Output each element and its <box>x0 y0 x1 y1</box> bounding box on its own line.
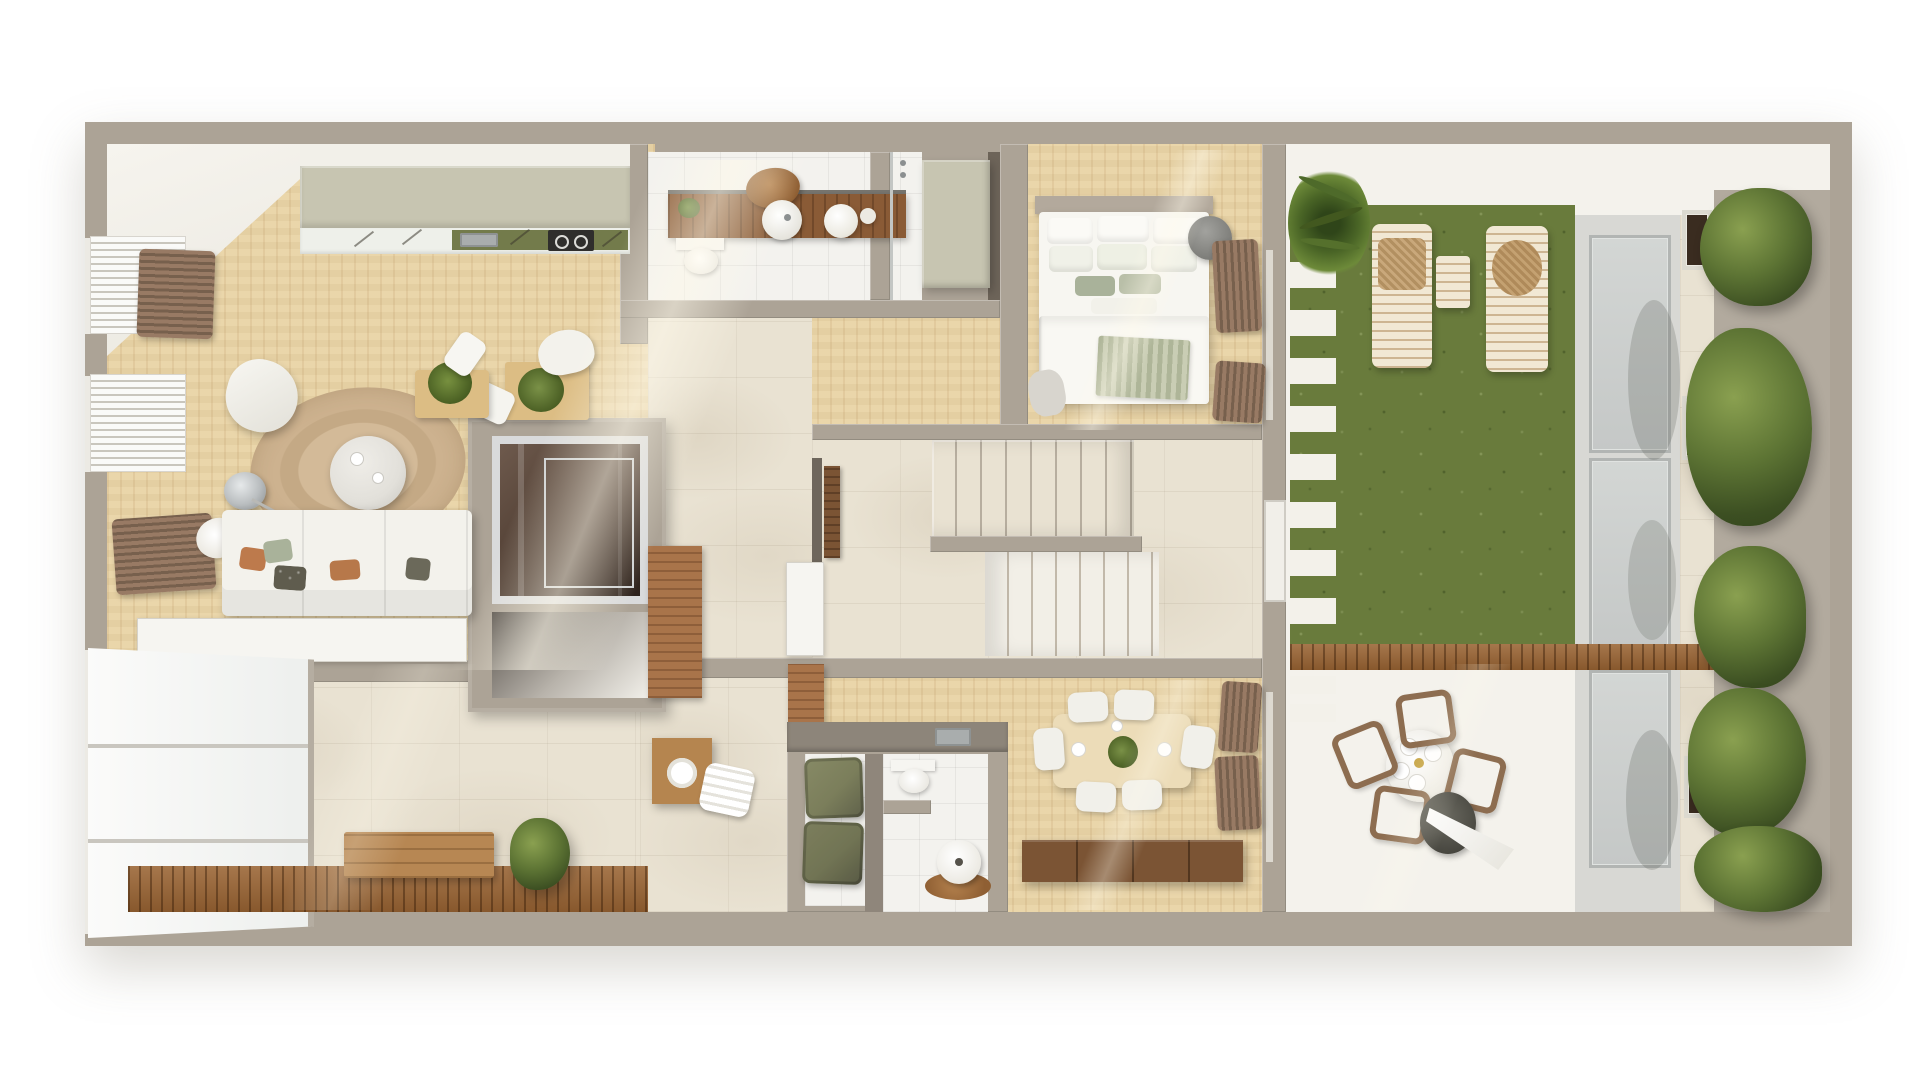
elevator-cab-frame <box>492 436 648 604</box>
pillow <box>1097 244 1147 270</box>
plant-shadow <box>1628 300 1680 460</box>
coffee-table <box>330 436 406 510</box>
dining-chair <box>1075 781 1117 813</box>
hedge-bush <box>1694 546 1806 688</box>
cooktop <box>548 230 594 251</box>
olive-pouf <box>802 821 864 885</box>
wall-stair-top <box>812 424 1262 440</box>
lounger-cushion <box>1492 240 1542 296</box>
burner <box>574 235 588 249</box>
centerpiece-plant <box>1108 736 1138 768</box>
curtain-stack <box>1212 239 1263 333</box>
floor-plan-render <box>0 0 1920 1080</box>
window-mullion <box>88 744 314 748</box>
curtain-stack <box>136 249 215 340</box>
wood-wall-cabinet <box>788 664 824 728</box>
window-mullion <box>88 839 314 843</box>
throw-pillow-dark <box>273 565 307 591</box>
stand-knob <box>955 858 963 866</box>
shower-fitting <box>900 172 906 178</box>
kitchen-backsplash <box>300 144 630 168</box>
kitchen-cabinet-run <box>300 166 630 228</box>
plate <box>1157 742 1172 757</box>
upper-stair-flight <box>932 440 1134 536</box>
cabin-outline <box>544 458 634 588</box>
wc-mid-wall <box>865 754 883 912</box>
pillow <box>1097 216 1149 242</box>
stepping-planks <box>1290 262 1336 652</box>
elevator-glass <box>500 444 640 596</box>
wall-stair-bottom <box>648 658 1262 678</box>
vanity-plant <box>678 198 700 218</box>
plate <box>1111 720 1123 732</box>
towel-roll <box>698 761 757 818</box>
kitchen-sink <box>460 233 498 247</box>
pillow <box>1049 246 1093 272</box>
slat-side-table <box>1436 256 1470 308</box>
fern-plant <box>1288 166 1370 280</box>
stepping-plank <box>1290 704 1336 722</box>
faucet <box>784 214 791 221</box>
pillow <box>1047 218 1093 244</box>
wardrobe-block <box>922 160 990 288</box>
pendant-lamp-small <box>860 208 876 224</box>
wc-toilet-bowl <box>899 769 929 793</box>
wall-stair-divider <box>930 536 1142 552</box>
pendant-lamp <box>824 204 858 238</box>
wood-bench <box>344 832 494 878</box>
wc-sink <box>935 728 971 746</box>
dining-chair <box>1067 691 1109 723</box>
pillow <box>1151 246 1197 272</box>
table-center <box>1414 758 1424 768</box>
olive-pouf <box>804 757 864 819</box>
plate <box>1071 742 1086 757</box>
plant-shadow <box>1626 730 1678 870</box>
hedge-bush <box>1686 328 1812 526</box>
shower-fitting <box>900 160 906 166</box>
dining-chair <box>1121 779 1162 810</box>
throw-pillow-rust <box>329 559 360 581</box>
plate <box>1424 744 1442 762</box>
walnut-sideboard <box>1022 840 1243 882</box>
stepping-plank <box>1290 676 1336 694</box>
lower-stair-flight <box>985 552 1159 656</box>
shower-glass <box>890 152 893 300</box>
throw-pillow-sage <box>263 538 294 564</box>
curtain-stack <box>1212 360 1266 423</box>
hedge-bush <box>1700 188 1812 306</box>
pillow-sage <box>1119 274 1161 294</box>
wc-counter <box>787 722 1008 752</box>
wc-inner-wall <box>883 800 931 814</box>
sage-throw <box>1095 336 1190 401</box>
plant-shadow <box>1628 520 1676 640</box>
wc-block <box>787 722 1008 912</box>
glass-dining-door <box>1266 692 1273 862</box>
sofa <box>222 510 472 616</box>
white-cabinet <box>786 562 824 656</box>
hedge-bush <box>1694 826 1822 912</box>
lounger-cushion <box>1378 238 1426 290</box>
sun-lounger <box>1372 224 1432 368</box>
bed <box>1035 196 1215 410</box>
door-frame <box>812 458 822 562</box>
outdoor-chair <box>1395 688 1458 749</box>
fireplace-niche <box>492 612 648 698</box>
dining-chair <box>1033 727 1066 771</box>
throw-pillow-dark <box>405 557 431 581</box>
round-basin <box>762 200 802 240</box>
wall-bathroom-bottom <box>620 300 1000 318</box>
burner <box>555 235 569 249</box>
side-wood-panel <box>648 546 702 698</box>
dining-chair <box>1113 689 1154 720</box>
dining-chair <box>1179 724 1217 770</box>
deck-divider <box>1290 644 1714 670</box>
sun-lounger <box>1486 226 1548 372</box>
toilet-bowl <box>684 248 718 274</box>
lumbar-pillow <box>1091 298 1157 314</box>
terrace-door <box>1264 500 1286 602</box>
towel-ring <box>667 758 697 788</box>
pillow-sage <box>1075 276 1115 296</box>
curtain-stack <box>1214 755 1262 831</box>
glass-bedroom-door <box>1266 250 1273 420</box>
wall-bedroom-left <box>1000 144 1028 440</box>
mattress <box>1039 212 1209 404</box>
window-blind <box>90 374 186 472</box>
glass-reflection <box>518 444 524 596</box>
curtain-stack <box>1218 681 1263 754</box>
cup <box>372 472 384 484</box>
dining-table <box>1053 714 1191 788</box>
cup <box>350 452 364 466</box>
wood-door-leaf <box>824 466 840 558</box>
